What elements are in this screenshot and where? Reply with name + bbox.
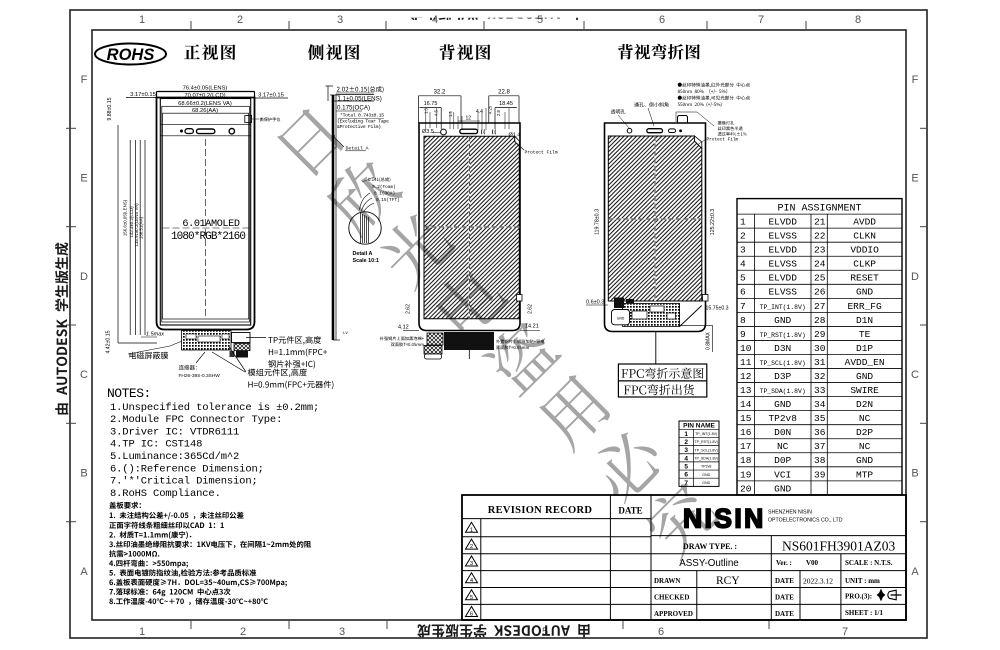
svg-text:TP_RST(1.8V): TP_RST(1.8V)	[694, 440, 718, 444]
svg-text:Protect Film: Protect Film	[707, 138, 739, 143]
svg-text:7: 7	[740, 301, 746, 312]
svg-text:TP2v8: TP2v8	[768, 413, 797, 424]
svg-text:Ver. :: Ver. :	[776, 559, 792, 567]
svg-text:SHENZHEN NISIN: SHENZHEN NISIN	[768, 510, 812, 516]
svg-text:(Excluding Tear Tape: (Excluding Tear Tape	[337, 119, 389, 125]
svg-text:PIN NAME: PIN NAME	[683, 423, 715, 430]
svg-text:16.75: 16.75	[424, 101, 438, 107]
svg-text:26: 26	[814, 287, 826, 298]
svg-text:ELVDD: ELVDD	[768, 245, 797, 256]
svg-text:GND: GND	[774, 315, 791, 326]
svg-text:APPROVED: APPROVED	[654, 610, 693, 618]
svg-text:D1N: D1N	[856, 315, 873, 326]
svg-text:13: 13	[740, 385, 752, 396]
svg-text:156.6±0.05(LENS): 156.6±0.05(LENS)	[123, 199, 128, 236]
svg-text:SHEET : 1/1: SHEET : 1/1	[845, 609, 883, 617]
svg-text:OPTOELECTRONICS CO., LTD: OPTOELECTRONICS CO., LTD	[768, 518, 843, 524]
svg-text:GND: GND	[856, 371, 873, 382]
svg-text:NISIN: NISIN	[683, 504, 766, 534]
svg-text:Scale 10:1: Scale 10:1	[353, 258, 379, 264]
svg-text:1: 1	[740, 217, 746, 228]
svg-text:7: 7	[758, 14, 764, 26]
svg-text:TP2v8: TP2v8	[701, 465, 711, 469]
svg-text:D2N: D2N	[856, 399, 873, 410]
svg-text:76.4±0.05(LENS): 76.4±0.05(LENS)	[183, 86, 228, 92]
svg-text:E: E	[80, 173, 87, 185]
svg-text:14: 14	[740, 399, 752, 410]
svg-text:Ø3.5: Ø3.5	[422, 129, 434, 135]
svg-text:GND: GND	[702, 481, 710, 485]
svg-text:24: 24	[814, 259, 826, 270]
svg-text:136.51(AA): 136.51(AA)	[139, 216, 144, 239]
svg-text:3.Driver IC: VTDR6111: 3.Driver IC: VTDR6111	[110, 426, 239, 438]
svg-text:ROHS: ROHS	[107, 46, 155, 64]
svg-text:37: 37	[814, 441, 825, 452]
svg-text:3: 3	[339, 626, 345, 638]
svg-text:15: 15	[740, 413, 752, 424]
svg-text:NOTES:: NOTES:	[107, 386, 151, 401]
svg-text:31: 31	[814, 357, 826, 368]
svg-text:27: 27	[814, 301, 825, 312]
svg-text:8: 8	[740, 315, 746, 326]
svg-text:3: 3	[684, 447, 688, 454]
svg-text:5.Luminance:365Cd/m^2: 5.Luminance:365Cd/m^2	[110, 451, 239, 463]
svg-text:18: 18	[740, 455, 752, 466]
svg-text:1: 1	[684, 431, 688, 438]
svg-text:TP_INT(1.8V): TP_INT(1.8V)	[760, 304, 806, 311]
svg-text:125.22±0.3: 125.22±0.3	[710, 209, 716, 236]
svg-text:RESET: RESET	[850, 273, 879, 284]
svg-text:1080*RGB*2160: 1080*RGB*2160	[171, 231, 245, 243]
svg-text:9.88±0.15: 9.88±0.15	[107, 97, 113, 120]
svg-text:1.5max: 1.5max	[146, 332, 164, 338]
svg-text:GND: GND	[702, 473, 710, 477]
svg-text:PIN ASSIGNMENT: PIN ASSIGNMENT	[777, 204, 861, 215]
svg-text:TP_RST(1.8V): TP_RST(1.8V)	[760, 332, 806, 339]
svg-text:TE: TE	[859, 329, 871, 340]
svg-text:TP_SDA(1.8V): TP_SDA(1.8V)	[760, 388, 806, 395]
svg-text:10: 10	[740, 343, 752, 354]
svg-text:6: 6	[470, 612, 473, 618]
svg-text:D0N: D0N	[774, 427, 791, 438]
svg-text:3: 3	[740, 245, 746, 256]
svg-text:2: 2	[237, 14, 243, 26]
svg-text:4.5: 4.5	[434, 110, 439, 116]
svg-text:D0P: D0P	[774, 455, 791, 466]
svg-text:1: 1	[139, 626, 145, 638]
svg-text:35: 35	[814, 413, 826, 424]
svg-text:19: 19	[740, 469, 752, 480]
svg-text:0.2(Foam): 0.2(Foam)	[372, 185, 396, 190]
svg-text:6: 6	[740, 287, 746, 298]
svg-text:C: C	[911, 369, 919, 381]
svg-text:D2P: D2P	[856, 427, 873, 438]
svg-text:ERR_FG: ERR_FG	[847, 301, 882, 312]
svg-text:14.21: 14.21	[525, 324, 539, 330]
svg-text:29: 29	[814, 329, 826, 340]
svg-text:CLKP: CLKP	[853, 259, 876, 270]
svg-text:B: B	[80, 468, 87, 480]
svg-text:GND: GND	[774, 399, 791, 410]
svg-text:B: B	[911, 468, 918, 480]
svg-text:A: A	[80, 566, 88, 578]
svg-text:TP_INT(1.8V): TP_INT(1.8V)	[695, 432, 717, 436]
svg-text:32: 32	[814, 371, 826, 382]
svg-text:6.():Reference Dimension;: 6.():Reference Dimension;	[110, 463, 264, 475]
svg-text:1.1±0.05(LENS): 1.1±0.05(LENS)	[338, 95, 382, 102]
svg-text:0.15(TFT): 0.15(TFT)	[376, 198, 400, 203]
svg-text:1.5: 1.5	[448, 111, 453, 117]
svg-text:NC: NC	[859, 413, 871, 424]
svg-text:9: 9	[740, 329, 746, 340]
svg-text:12: 12	[740, 371, 752, 382]
svg-text:4: 4	[740, 259, 746, 270]
svg-text:VDDIO: VDDIO	[850, 245, 879, 256]
svg-text:DATE: DATE	[775, 594, 794, 602]
svg-text:D: D	[911, 271, 919, 283]
svg-text:3: 3	[470, 561, 473, 567]
svg-text:5: 5	[740, 273, 746, 284]
svg-text:ELVSS: ELVSS	[768, 231, 797, 242]
svg-text:GND: GND	[774, 483, 791, 494]
svg-text:16: 16	[740, 427, 752, 438]
svg-text:ELVSS: ELVSS	[768, 287, 797, 298]
svg-text:8.RoHS Compliance.: 8.RoHS Compliance.	[110, 488, 221, 500]
svg-text:1.Unspecified tolerance is ±0.: 1.Unspecified tolerance is ±0.2mm;	[110, 402, 319, 414]
svg-text:E: E	[911, 173, 918, 185]
svg-text:2.62: 2.62	[406, 304, 412, 314]
svg-text:2.Module FPC Connector Type:: 2.Module FPC Connector Type:	[110, 414, 282, 426]
svg-text:4.42±0.15: 4.42±0.15	[106, 330, 112, 353]
svg-text:1: 1	[139, 14, 145, 26]
svg-text:SCALE : N.T.S.: SCALE : N.T.S.	[845, 559, 893, 567]
svg-text:2022.3.12: 2022.3.12	[803, 577, 833, 586]
svg-text:D1P: D1P	[856, 343, 873, 354]
svg-text:30: 30	[814, 343, 826, 354]
svg-text:7: 7	[684, 480, 688, 487]
svg-text:20: 20	[740, 483, 752, 494]
svg-text:MTP: MTP	[856, 469, 873, 480]
svg-text:ELVDD: ELVDD	[768, 217, 797, 228]
svg-text:119.78±0.3: 119.78±0.3	[595, 209, 601, 235]
svg-text:2: 2	[684, 439, 688, 446]
svg-text:0.8MAX: 0.8MAX	[706, 331, 712, 349]
svg-text:REVISION RECORD: REVISION RECORD	[488, 505, 593, 516]
svg-text:3: 3	[337, 14, 343, 26]
svg-text:AVDD: AVDD	[853, 217, 876, 228]
svg-text:ASSY-Outline: ASSY-Outline	[679, 558, 739, 569]
svg-text:15.75±0.3: 15.75±0.3	[706, 306, 729, 312]
svg-text:V00: V00	[806, 559, 819, 567]
svg-text:23: 23	[814, 245, 826, 256]
svg-text:F: F	[81, 74, 88, 86]
svg-text:ELVDD: ELVDD	[768, 273, 797, 284]
svg-text:AVDD_EN: AVDD_EN	[845, 357, 885, 368]
svg-text:2: 2	[470, 544, 473, 550]
svg-text:GND: GND	[856, 287, 873, 298]
svg-text:8: 8	[855, 14, 861, 26]
svg-text:TP_SCL(1.8V): TP_SCL(1.8V)	[695, 448, 718, 452]
svg-text:3.17±0.15: 3.17±0.15	[258, 92, 284, 98]
svg-text:5: 5	[684, 464, 688, 471]
svg-text:DATE: DATE	[775, 610, 794, 618]
svg-text:TP_SCL(1.8V): TP_SCL(1.8V)	[760, 360, 806, 367]
svg-text:7.'*'Critical Dimension;: 7.'*'Critical Dimension;	[110, 476, 258, 488]
svg-text:34: 34	[814, 399, 826, 410]
svg-text:6: 6	[684, 472, 688, 479]
svg-text:DATE: DATE	[618, 506, 642, 516]
svg-text:33: 33	[814, 385, 826, 396]
svg-text:*Total 0.743±0.15: *Total 0.743±0.15	[340, 113, 384, 119]
svg-text:5: 5	[537, 14, 543, 26]
svg-text:Protect Film: Protect Film	[525, 150, 558, 156]
svg-text:F: F	[912, 74, 919, 86]
svg-text:6: 6	[659, 14, 665, 26]
svg-text:12: 12	[466, 116, 472, 122]
svg-text:32.2: 32.2	[434, 90, 446, 96]
svg-text:3.17±0.15: 3.17±0.15	[130, 92, 156, 98]
svg-text:2.8: 2.8	[496, 110, 501, 116]
svg-text:DATE: DATE	[775, 577, 794, 585]
svg-text:22: 22	[814, 231, 826, 242]
svg-text:ELVSS: ELVSS	[768, 259, 797, 270]
svg-text:DRAW TYPE. :: DRAW TYPE. :	[683, 542, 737, 551]
svg-text:2.62: 2.62	[528, 304, 534, 314]
svg-text:6.01AMOLED: 6.01AMOLED	[182, 219, 239, 230]
svg-text:D3P: D3P	[774, 371, 791, 382]
svg-text:DRAWN: DRAWN	[654, 577, 680, 585]
svg-text:D: D	[80, 271, 88, 283]
svg-text:68.66±0.2(LENS VA): 68.66±0.2(LENS VA)	[178, 101, 232, 107]
svg-text:NS601FH3901AZ03: NS601FH3901AZ03	[782, 539, 896, 554]
svg-text:TP_SDA(1.8V): TP_SDA(1.8V)	[694, 457, 718, 461]
svg-text:FH26-39S-0.3SHW: FH26-39S-0.3SHW	[179, 373, 221, 379]
svg-text:0.1(OCA): 0.1(OCA)	[374, 192, 395, 197]
svg-text:NC: NC	[859, 441, 871, 452]
svg-text:CHECKED: CHECKED	[654, 594, 689, 602]
svg-text:D3N: D3N	[774, 343, 791, 354]
svg-text:4.12: 4.12	[398, 325, 409, 331]
svg-text:2: 2	[240, 626, 246, 638]
svg-text:5: 5	[470, 595, 473, 601]
svg-text:4.25: 4.25	[488, 105, 493, 114]
svg-text:LV: LV	[343, 332, 348, 336]
svg-text:25: 25	[814, 273, 826, 284]
svg-text:6: 6	[658, 626, 664, 638]
svg-text:7: 7	[842, 626, 848, 638]
svg-text:&Protective Film): &Protective Film)	[337, 124, 381, 130]
svg-text:Detail A: Detail A	[353, 251, 373, 257]
svg-text:UNIT : mm: UNIT : mm	[845, 577, 880, 585]
svg-text:38: 38	[814, 455, 826, 466]
svg-text:0.175(OCA): 0.175(OCA)	[337, 105, 370, 112]
svg-text:A: A	[911, 566, 919, 578]
svg-text:22.8: 22.8	[498, 90, 510, 96]
svg-text:18.45: 18.45	[499, 101, 513, 107]
svg-text:C: C	[80, 369, 88, 381]
svg-text:36: 36	[814, 427, 826, 438]
svg-text:21: 21	[814, 217, 826, 228]
svg-text:4: 4	[684, 455, 688, 462]
svg-text:28: 28	[814, 315, 826, 326]
svg-text:2: 2	[740, 231, 746, 242]
svg-text:RCY: RCY	[716, 575, 740, 587]
svg-text:1: 1	[470, 527, 473, 533]
svg-text:11: 11	[740, 357, 752, 368]
svg-text:0.6±0.3: 0.6±0.3	[586, 300, 604, 306]
svg-text:GND: GND	[856, 455, 873, 466]
svg-text:4: 4	[432, 14, 438, 26]
svg-text:4.TP IC: CST148: 4.TP IC: CST148	[110, 439, 202, 451]
svg-text:CLKN: CLKN	[853, 231, 876, 242]
svg-text:SWIRE: SWIRE	[850, 385, 879, 396]
svg-text:NC: NC	[777, 441, 789, 452]
svg-text:17: 17	[740, 441, 751, 452]
svg-text:PRO.(3):: PRO.(3):	[845, 593, 872, 601]
svg-text:39: 39	[814, 469, 826, 480]
svg-text:VCI: VCI	[774, 469, 791, 480]
